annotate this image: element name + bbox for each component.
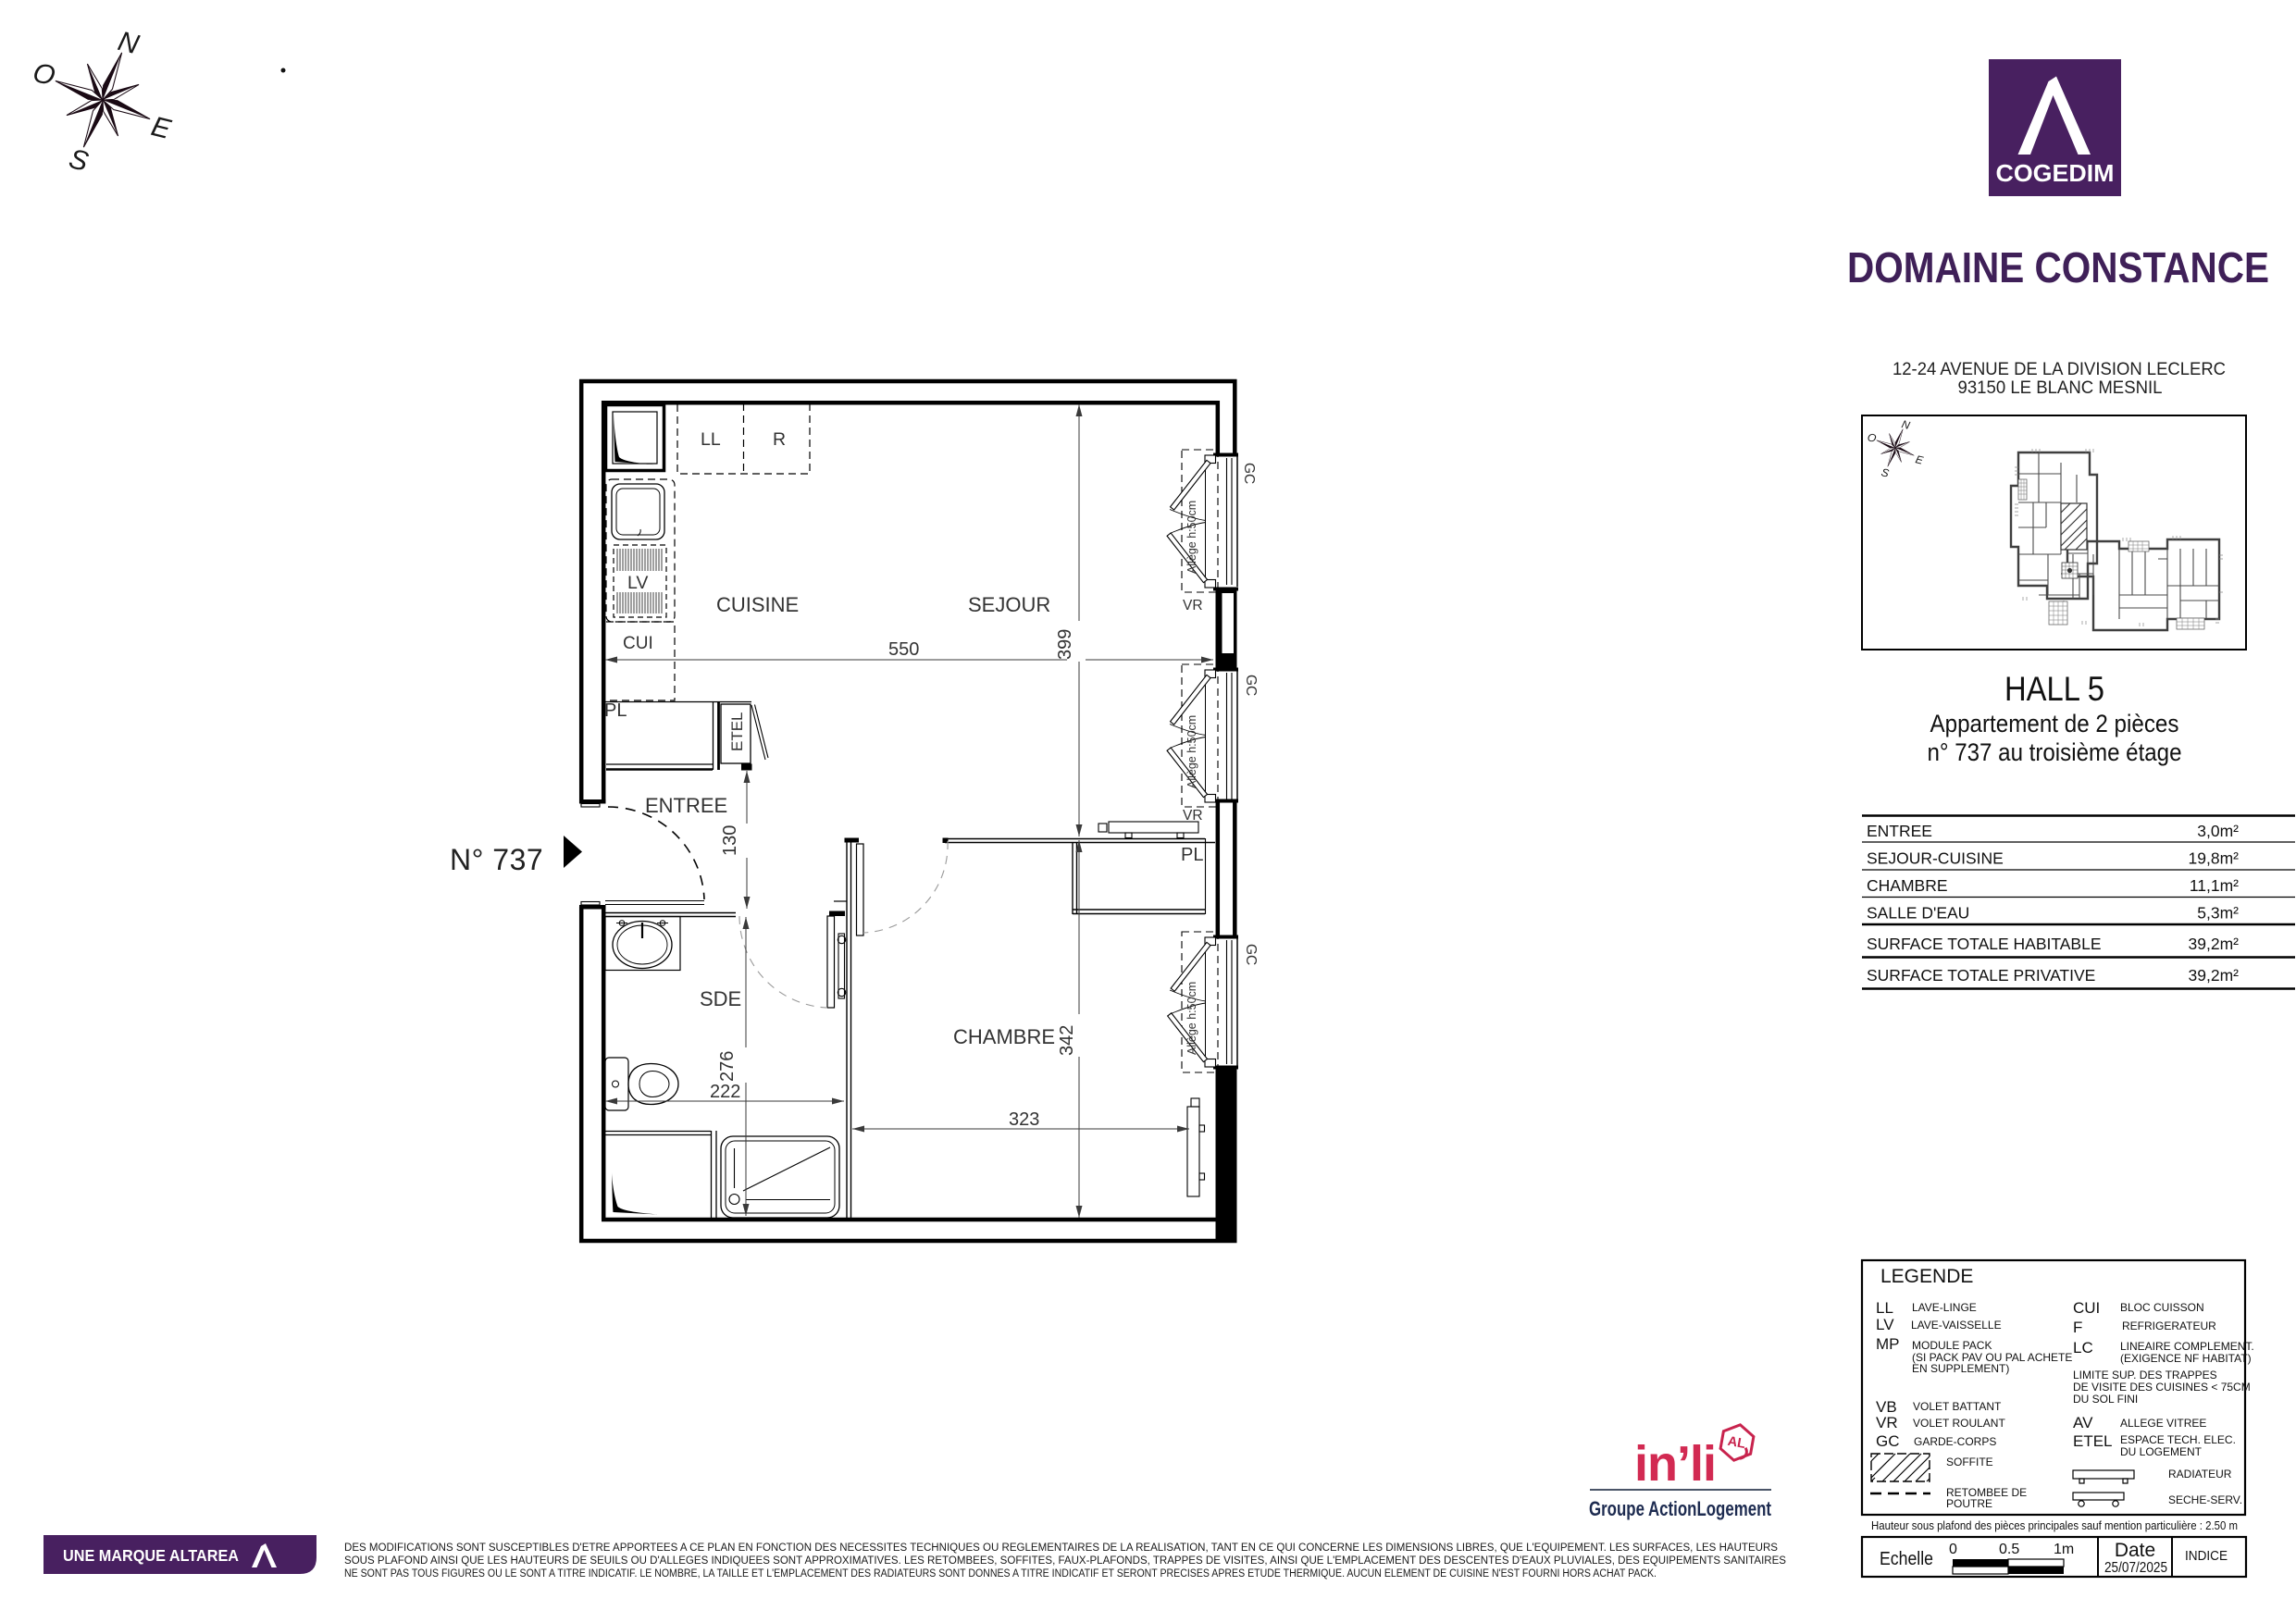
svg-text:Date: Date [2115, 1540, 2155, 1561]
svg-text:CUI: CUI [623, 634, 653, 653]
svg-text:SURFACE TOTALE HABITABLE: SURFACE TOTALE HABITABLE [1867, 935, 2102, 953]
svg-text:GC: GC [1241, 463, 1257, 484]
svg-text:0.5: 0.5 [1999, 1542, 2019, 1557]
svg-text:342: 342 [1057, 1025, 1077, 1056]
svg-text:Allège h:50cm: Allège h:50cm [1185, 715, 1198, 788]
svg-text:19,8m²: 19,8m² [2189, 849, 2240, 868]
svg-text:LV: LV [1876, 1316, 1894, 1333]
svg-text:5,3m²: 5,3m² [2197, 904, 2239, 923]
svg-text:NE SONT PAS TOUS FIGURES OU LE: NE SONT PAS TOUS FIGURES OU LE SONT A TI… [344, 1567, 1657, 1580]
svg-text:1m: 1m [2054, 1542, 2074, 1557]
svg-text:93150 LE BLANC MESNIL: 93150 LE BLANC MESNIL [1958, 378, 2163, 398]
svg-text:MODULE PACK: MODULE PACK [1912, 1339, 1992, 1352]
svg-text:EN SUPPLEMENT): EN SUPPLEMENT) [1912, 1362, 2009, 1375]
svg-text:VOLET ROULANT: VOLET ROULANT [1913, 1417, 2005, 1430]
svg-text:AV: AV [2073, 1414, 2093, 1431]
svg-text:25/07/2025: 25/07/2025 [2104, 1560, 2167, 1576]
svg-text:MP: MP [1876, 1335, 1900, 1353]
svg-text:Echelle: Echelle [1880, 1549, 1933, 1569]
svg-text:3,0m²: 3,0m² [2197, 822, 2239, 840]
svg-text:REFRIGERATEUR: REFRIGERATEUR [2122, 1319, 2216, 1332]
svg-text:INDICE: INDICE [2185, 1548, 2228, 1564]
svg-text:SALLE D'EAU: SALLE D'EAU [1867, 904, 1969, 923]
svg-text:323: 323 [1009, 1109, 1039, 1130]
svg-text:DE VISITE DES CUISINES < 75CM: DE VISITE DES CUISINES < 75CM [2073, 1381, 2251, 1394]
svg-text:DU LOGEMENT: DU LOGEMENT [2120, 1445, 2203, 1458]
svg-text:SURFACE TOTALE PRIVATIVE: SURFACE TOTALE PRIVATIVE [1867, 966, 2095, 985]
svg-text:VR: VR [1183, 598, 1203, 613]
svg-text:DU SOL FINI: DU SOL FINI [2073, 1393, 2138, 1406]
svg-text:COGEDIM: COGEDIM [1996, 159, 2115, 187]
svg-text:LC: LC [2073, 1339, 2093, 1357]
svg-text:F: F [2073, 1319, 2082, 1336]
svg-text:LAVE-VAISSELLE: LAVE-VAISSELLE [1911, 1319, 2002, 1332]
svg-text:LL: LL [1876, 1299, 1893, 1317]
svg-text:130: 130 [720, 825, 740, 856]
svg-text:Appartement de 2 pièces: Appartement de 2 pièces [1930, 710, 2179, 737]
svg-text:PL: PL [1181, 845, 1203, 865]
svg-text:ESPACE TECH. ELEC.: ESPACE TECH. ELEC. [2120, 1433, 2236, 1446]
svg-text:VOLET BATTANT: VOLET BATTANT [1913, 1400, 2002, 1413]
svg-text:POUTRE: POUTRE [1946, 1497, 1992, 1510]
svg-text:12-24 AVENUE DE LA DIVISION LE: 12-24 AVENUE DE LA DIVISION LECLERC [1893, 360, 2226, 379]
svg-text:SEJOUR-CUISINE: SEJOUR-CUISINE [1867, 849, 2004, 868]
svg-text:Hauteur sous plafond des pièce: Hauteur sous plafond des pièces principa… [1871, 1519, 2238, 1532]
svg-text:DES MODIFICATIONS SONT SUSCEPT: DES MODIFICATIONS SONT SUSCEPTIBLES D'ET… [344, 1541, 1778, 1554]
svg-text:GARDE-CORPS: GARDE-CORPS [1914, 1435, 1996, 1448]
svg-text:CUI: CUI [2073, 1299, 2100, 1317]
svg-text:LEGENDE: LEGENDE [1880, 1266, 1973, 1287]
svg-text:LAVE-LINGE: LAVE-LINGE [1912, 1301, 1977, 1314]
svg-text:11,1m²: 11,1m² [2190, 876, 2239, 895]
svg-text:n° 737 au troisième étage: n° 737 au troisième étage [1928, 738, 2182, 766]
svg-text:AL: AL [1727, 1434, 1747, 1452]
svg-text:SECHE-SERV.: SECHE-SERV. [2168, 1493, 2242, 1506]
svg-text:LINEAIRE COMPLEMENT.: LINEAIRE COMPLEMENT. [2120, 1340, 2254, 1353]
svg-text:SOUS PLAFOND AINSI QUE LES HAU: SOUS PLAFOND AINSI QUE LES HAUTEURS DE S… [344, 1554, 1786, 1567]
svg-text:ALLEGE VITREE: ALLEGE VITREE [2120, 1417, 2206, 1430]
svg-text:Allège h:50cm: Allège h:50cm [1185, 501, 1198, 574]
svg-text:VR: VR [1876, 1414, 1898, 1431]
svg-text:(EXIGENCE NF HABITAT): (EXIGENCE NF HABITAT) [2120, 1352, 2252, 1365]
svg-text:ENTREE: ENTREE [1867, 822, 1932, 840]
svg-text:GC: GC [1243, 675, 1259, 696]
svg-text:CHAMBRE: CHAMBRE [1867, 876, 1948, 895]
svg-text:BLOC CUISSON: BLOC CUISSON [2120, 1301, 2204, 1314]
svg-text:LV: LV [627, 573, 648, 593]
svg-text:ETEL: ETEL [2073, 1432, 2113, 1450]
svg-text:Groupe ActionLogement: Groupe ActionLogement [1589, 1497, 1772, 1520]
svg-text:UNE MARQUE ALTAREA: UNE MARQUE ALTAREA [63, 1546, 239, 1565]
svg-text:LL: LL [701, 429, 721, 450]
svg-text:CHAMBRE: CHAMBRE [953, 1025, 1055, 1048]
svg-text:222: 222 [710, 1082, 740, 1102]
svg-text:GC: GC [1243, 944, 1259, 965]
svg-text:0: 0 [1949, 1542, 1957, 1557]
svg-text:SOFFITE: SOFFITE [1946, 1456, 1993, 1468]
svg-text:GC: GC [1876, 1432, 1900, 1450]
svg-text:39,2m²: 39,2m² [2189, 966, 2240, 985]
svg-text:DOMAINE CONSTANCE: DOMAINE CONSTANCE [1847, 243, 2269, 291]
svg-text:SDE: SDE [700, 987, 741, 1010]
svg-text:RADIATEUR: RADIATEUR [2168, 1468, 2232, 1481]
svg-text:276: 276 [717, 1051, 738, 1082]
svg-text:N° 737: N° 737 [450, 843, 543, 876]
svg-text:HALL 5: HALL 5 [2004, 670, 2104, 708]
svg-text:550: 550 [888, 639, 919, 660]
svg-text:ETEL: ETEL [728, 712, 746, 751]
svg-text:R: R [773, 429, 786, 450]
svg-text:PL: PL [604, 700, 627, 721]
svg-text:Allège h:50cm: Allège h:50cm [1185, 982, 1198, 1055]
svg-text:LIMITE SUP. DES TRAPPES: LIMITE SUP. DES TRAPPES [2073, 1369, 2217, 1381]
svg-text:399: 399 [1055, 629, 1075, 660]
svg-text:in’li: in’li [1634, 1436, 1716, 1492]
svg-text:SEJOUR: SEJOUR [968, 593, 1050, 616]
svg-text:CUISINE: CUISINE [716, 593, 799, 616]
svg-text:39,2m²: 39,2m² [2189, 935, 2240, 953]
svg-text:ENTREE: ENTREE [645, 794, 727, 817]
